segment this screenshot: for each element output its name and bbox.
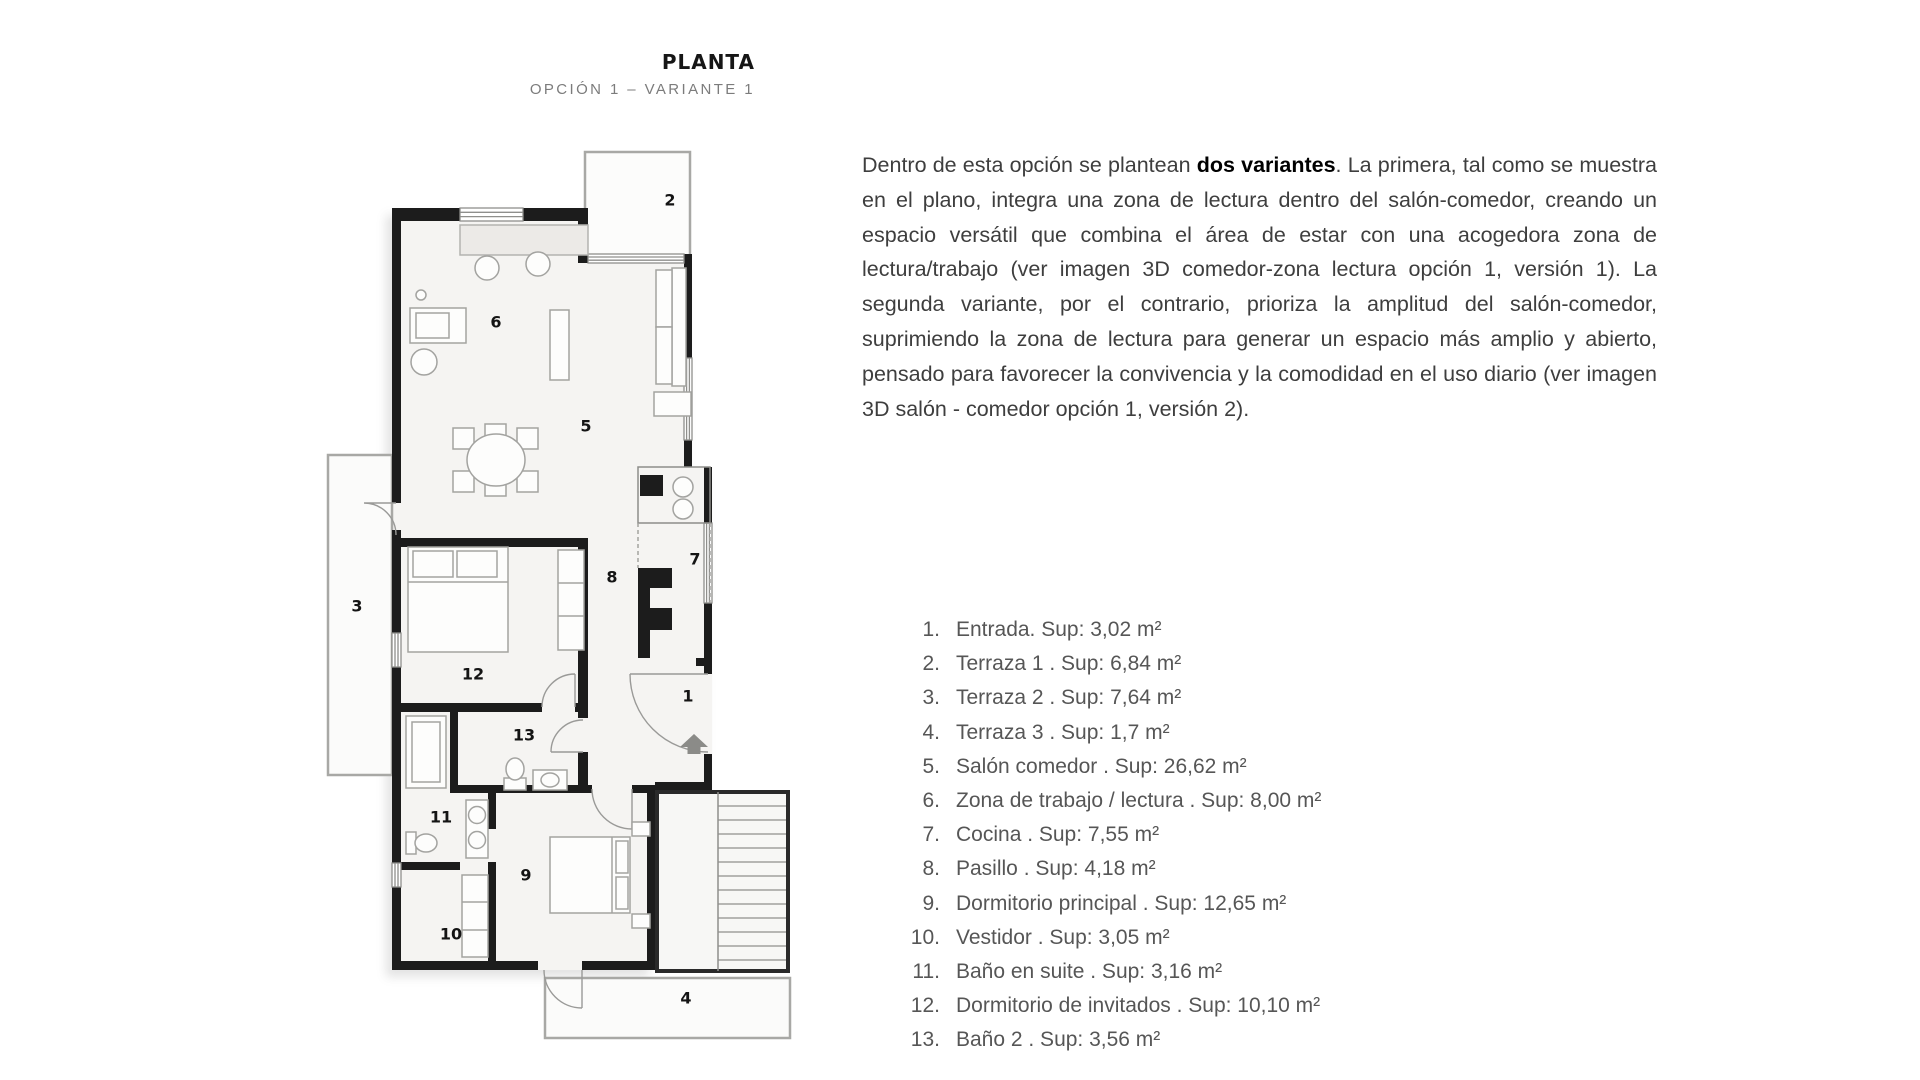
room-number: 11.: [858, 955, 956, 989]
pillow: [616, 841, 628, 873]
burner: [673, 499, 693, 519]
room-label: Dormitorio de invitados . Sup: 10,10 m²: [956, 989, 1320, 1023]
room-label: Salón comedor . Sup: 26,62 m²: [956, 750, 1247, 784]
armchair: [475, 256, 499, 280]
plan-room-number: 13: [513, 726, 535, 745]
room-list-item: 12.Dormitorio de invitados . Sup: 10,10 …: [858, 989, 1321, 1023]
room-list-item: 4.Terraza 3 . Sup: 1,7 m²: [858, 716, 1321, 750]
floor-plan-svg: 12345678910111213: [320, 140, 800, 1050]
nightstand: [632, 822, 650, 836]
page-subtitle: OPCIÓN 1 – VARIANTE 1: [415, 81, 755, 98]
room-label: Cocina . Sup: 7,55 m²: [956, 818, 1159, 852]
room-number: 3.: [858, 681, 956, 715]
room-list-item: 7.Cocina . Sup: 7,55 m²: [858, 818, 1321, 852]
wardrobe: [558, 550, 584, 650]
pillow: [616, 877, 628, 909]
room-list-item: 10.Vestidor . Sup: 3,05 m²: [858, 921, 1321, 955]
kitchen-appliance: [640, 475, 663, 496]
plan-room-number: 12: [462, 665, 484, 684]
room-number: 10.: [858, 921, 956, 955]
coffee-table: [654, 392, 691, 416]
plan-room-number: 4: [680, 989, 691, 1008]
plan-room-number: 9: [520, 866, 531, 885]
kitchen-counter: [638, 568, 650, 658]
sink: [673, 477, 693, 497]
room-label: Pasillo . Sup: 4,18 m²: [956, 852, 1156, 886]
plan-room-number: 11: [430, 808, 452, 827]
room-number: 1.: [858, 613, 956, 647]
room-label: Vestidor . Sup: 3,05 m²: [956, 921, 1170, 955]
description-text: . La primera, tal como se muestra en el …: [862, 153, 1657, 421]
room-label: Terraza 2 . Sup: 7,64 m²: [956, 681, 1181, 715]
room-number: 6.: [858, 784, 956, 818]
sofa-back: [672, 268, 686, 386]
room-label: Terraza 1 . Sup: 6,84 m²: [956, 647, 1181, 681]
plan-room-number: 5: [580, 417, 591, 436]
room-label: Baño 2 . Sup: 3,56 m²: [956, 1023, 1160, 1057]
plan-room-number: 3: [351, 597, 362, 616]
room-number: 13.: [858, 1023, 956, 1057]
nightstand: [632, 914, 650, 928]
plan-room-number: 6: [490, 313, 501, 332]
room-list-item: 11.Baño en suite . Sup: 3,16 m²: [858, 955, 1321, 989]
armchair: [526, 252, 550, 276]
room-list-item: 2.Terraza 1 . Sup: 6,84 m²: [858, 647, 1321, 681]
room-label: Terraza 3 . Sup: 1,7 m²: [956, 716, 1170, 750]
room-number: 5.: [858, 750, 956, 784]
desk-chair: [411, 349, 437, 375]
description-text: Dentro de esta opción se plantean: [862, 153, 1197, 177]
stairwell: [657, 792, 788, 971]
room-label: Dormitorio principal . Sup: 12,65 m²: [956, 887, 1286, 921]
sofa-cushion: [656, 327, 672, 384]
room-list-item: 9.Dormitorio principal . Sup: 12,65 m²: [858, 887, 1321, 921]
room-list-item: 13.Baño 2 . Sup: 3,56 m²: [858, 1023, 1321, 1057]
page-title: PLANTA: [415, 50, 755, 74]
room-list-item: 6.Zona de trabajo / lectura . Sup: 8,00 …: [858, 784, 1321, 818]
toilet: [415, 834, 437, 852]
sideboard: [460, 225, 588, 255]
plan-room-number: 10: [440, 925, 462, 944]
plan-room-number: 1: [682, 687, 693, 706]
description-paragraph: Dentro de esta opción se plantean dos va…: [862, 148, 1657, 426]
room-list-item: 1.Entrada. Sup: 3,02 m²: [858, 613, 1321, 647]
closet: [462, 875, 488, 957]
floor-plan: 12345678910111213: [320, 140, 800, 1050]
plan-room-number: 7: [689, 550, 700, 569]
room-number: 9.: [858, 887, 956, 921]
plan-room-number: 2: [664, 191, 675, 210]
room-number: 7.: [858, 818, 956, 852]
sofa-cushion: [656, 270, 672, 327]
room-list-item: 5.Salón comedor . Sup: 26,62 m²: [858, 750, 1321, 784]
room-number: 8.: [858, 852, 956, 886]
toilet: [506, 758, 524, 780]
description-bold-text: dos variantes: [1197, 153, 1336, 177]
room-label: Baño en suite . Sup: 3,16 m²: [956, 955, 1222, 989]
room-number: 4.: [858, 716, 956, 750]
plan-room-number: 8: [606, 568, 617, 587]
room-label: Entrada. Sup: 3,02 m²: [956, 613, 1161, 647]
room-list: 1.Entrada. Sup: 3,02 m²2.Terraza 1 . Sup…: [858, 613, 1321, 1058]
room-number: 2.: [858, 647, 956, 681]
room-label: Zona de trabajo / lectura . Sup: 8,00 m²: [956, 784, 1321, 818]
pillow: [413, 551, 453, 577]
room-list-item: 3.Terraza 2 . Sup: 7,64 m²: [858, 681, 1321, 715]
shelf: [550, 310, 569, 380]
room-list-item: 8.Pasillo . Sup: 4,18 m²: [858, 852, 1321, 886]
pillow: [457, 551, 497, 577]
title-block: PLANTA OPCIÓN 1 – VARIANTE 1: [415, 50, 755, 98]
room-number: 12.: [858, 989, 956, 1023]
desk-lamp: [416, 290, 426, 300]
dining-table: [467, 434, 525, 486]
